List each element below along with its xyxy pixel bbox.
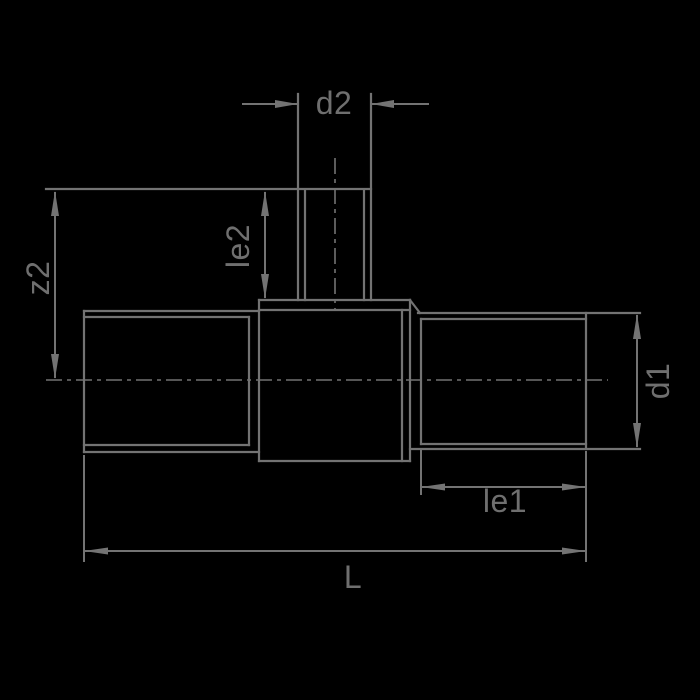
dimension-label-le2: le2 <box>220 224 256 268</box>
dimension-label-L: L <box>344 559 362 595</box>
technical-drawing-canvas: d2 le2 z2 d1 le1 L <box>0 0 700 700</box>
fitting-diagram: d2 le2 z2 d1 le1 L <box>0 0 700 700</box>
dimension-label-le1: le1 <box>483 483 527 519</box>
dimension-label-d2: d2 <box>316 85 353 121</box>
dimension-label-z2: z2 <box>20 261 56 296</box>
dimension-label-d1: d1 <box>640 363 676 400</box>
